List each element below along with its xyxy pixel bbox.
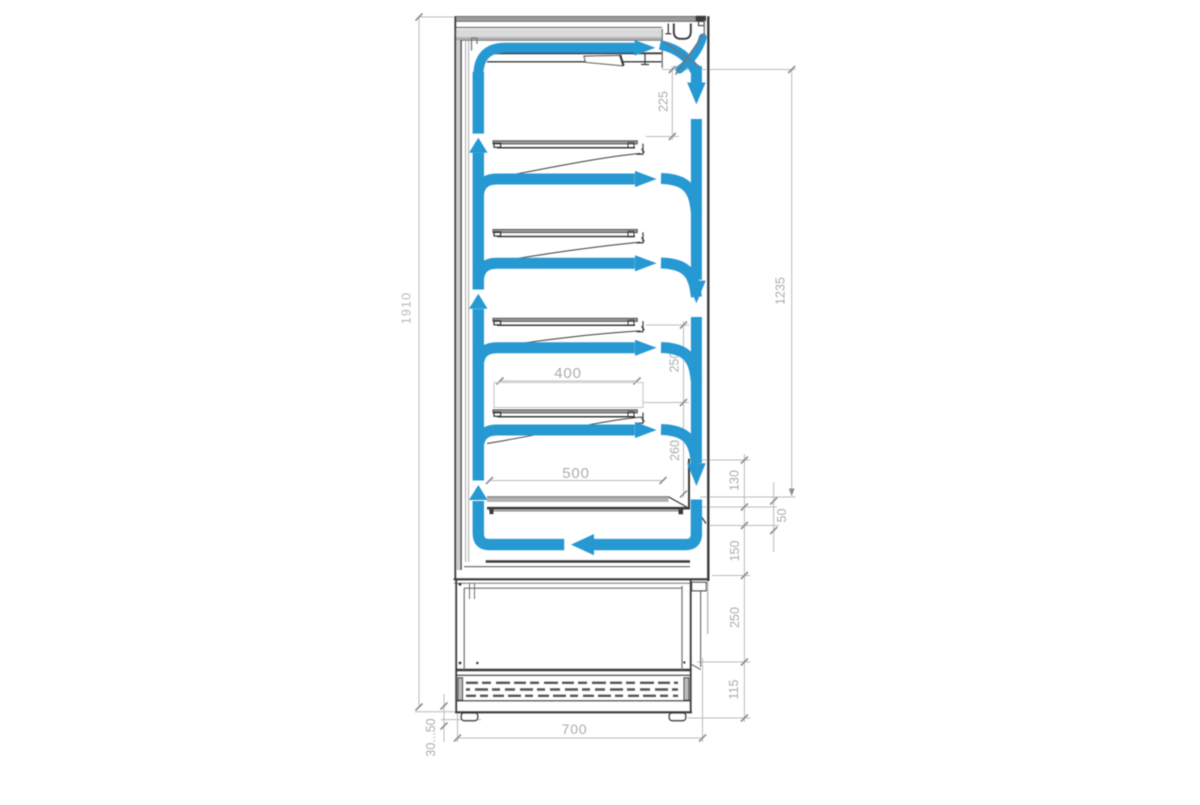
svg-text:500: 500 (562, 465, 589, 482)
svg-text:700: 700 (562, 721, 588, 737)
svg-text:250: 250 (728, 607, 742, 628)
svg-text:400: 400 (554, 365, 581, 382)
svg-text:1910: 1910 (400, 292, 414, 325)
svg-text:50: 50 (775, 509, 789, 523)
svg-text:30...50: 30...50 (424, 718, 438, 756)
svg-text:150: 150 (728, 541, 742, 562)
svg-text:115: 115 (727, 679, 741, 699)
svg-text:225: 225 (657, 91, 671, 112)
svg-text:260: 260 (668, 440, 682, 461)
svg-text:130: 130 (728, 470, 742, 491)
svg-text:1235: 1235 (774, 277, 788, 305)
